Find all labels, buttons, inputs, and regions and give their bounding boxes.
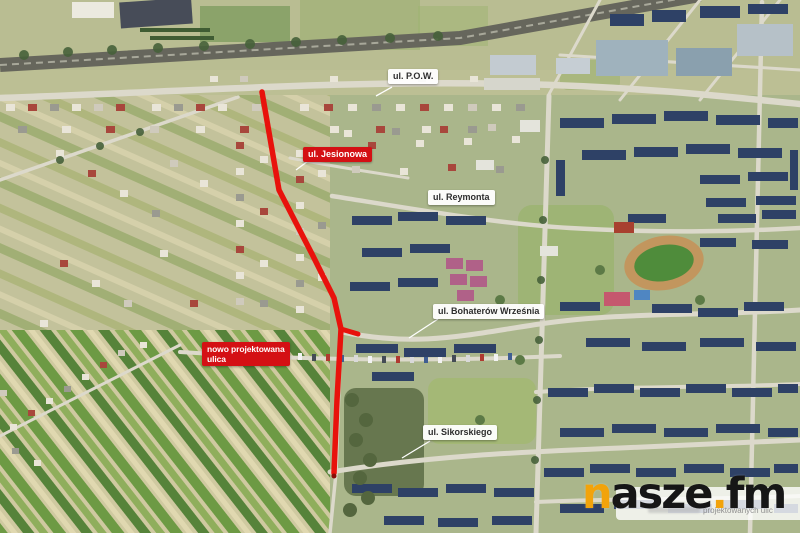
brand-dot: . (711, 469, 725, 519)
brand-letters-fm: fm (726, 469, 786, 519)
route-end-marker (332, 474, 337, 479)
street-label-bohaterow: ul. Bohaterów Września (433, 304, 544, 319)
planned-street-label: nowo projektowana ulica (202, 342, 290, 366)
street-label-pow: ul. P.O.W. (388, 69, 438, 84)
nasze-fm-watermark: nasze.fm (582, 473, 785, 516)
brand-letter-n: n (582, 469, 611, 519)
planned-street-label-line2: ulica (207, 354, 285, 364)
map-canvas: ul. P.O.W. ul. Jesionowa ul. Reymonta ul… (0, 0, 800, 533)
street-label-sikorskiego: ul. Sikorskiego (423, 425, 497, 440)
brand-letters-asze: asze (611, 469, 712, 519)
planned-street-label-line1: nowo projektowana (207, 344, 285, 354)
street-label-jesionowa: ul. Jesionowa (303, 147, 372, 162)
street-label-reymonta: ul. Reymonta (428, 190, 495, 205)
